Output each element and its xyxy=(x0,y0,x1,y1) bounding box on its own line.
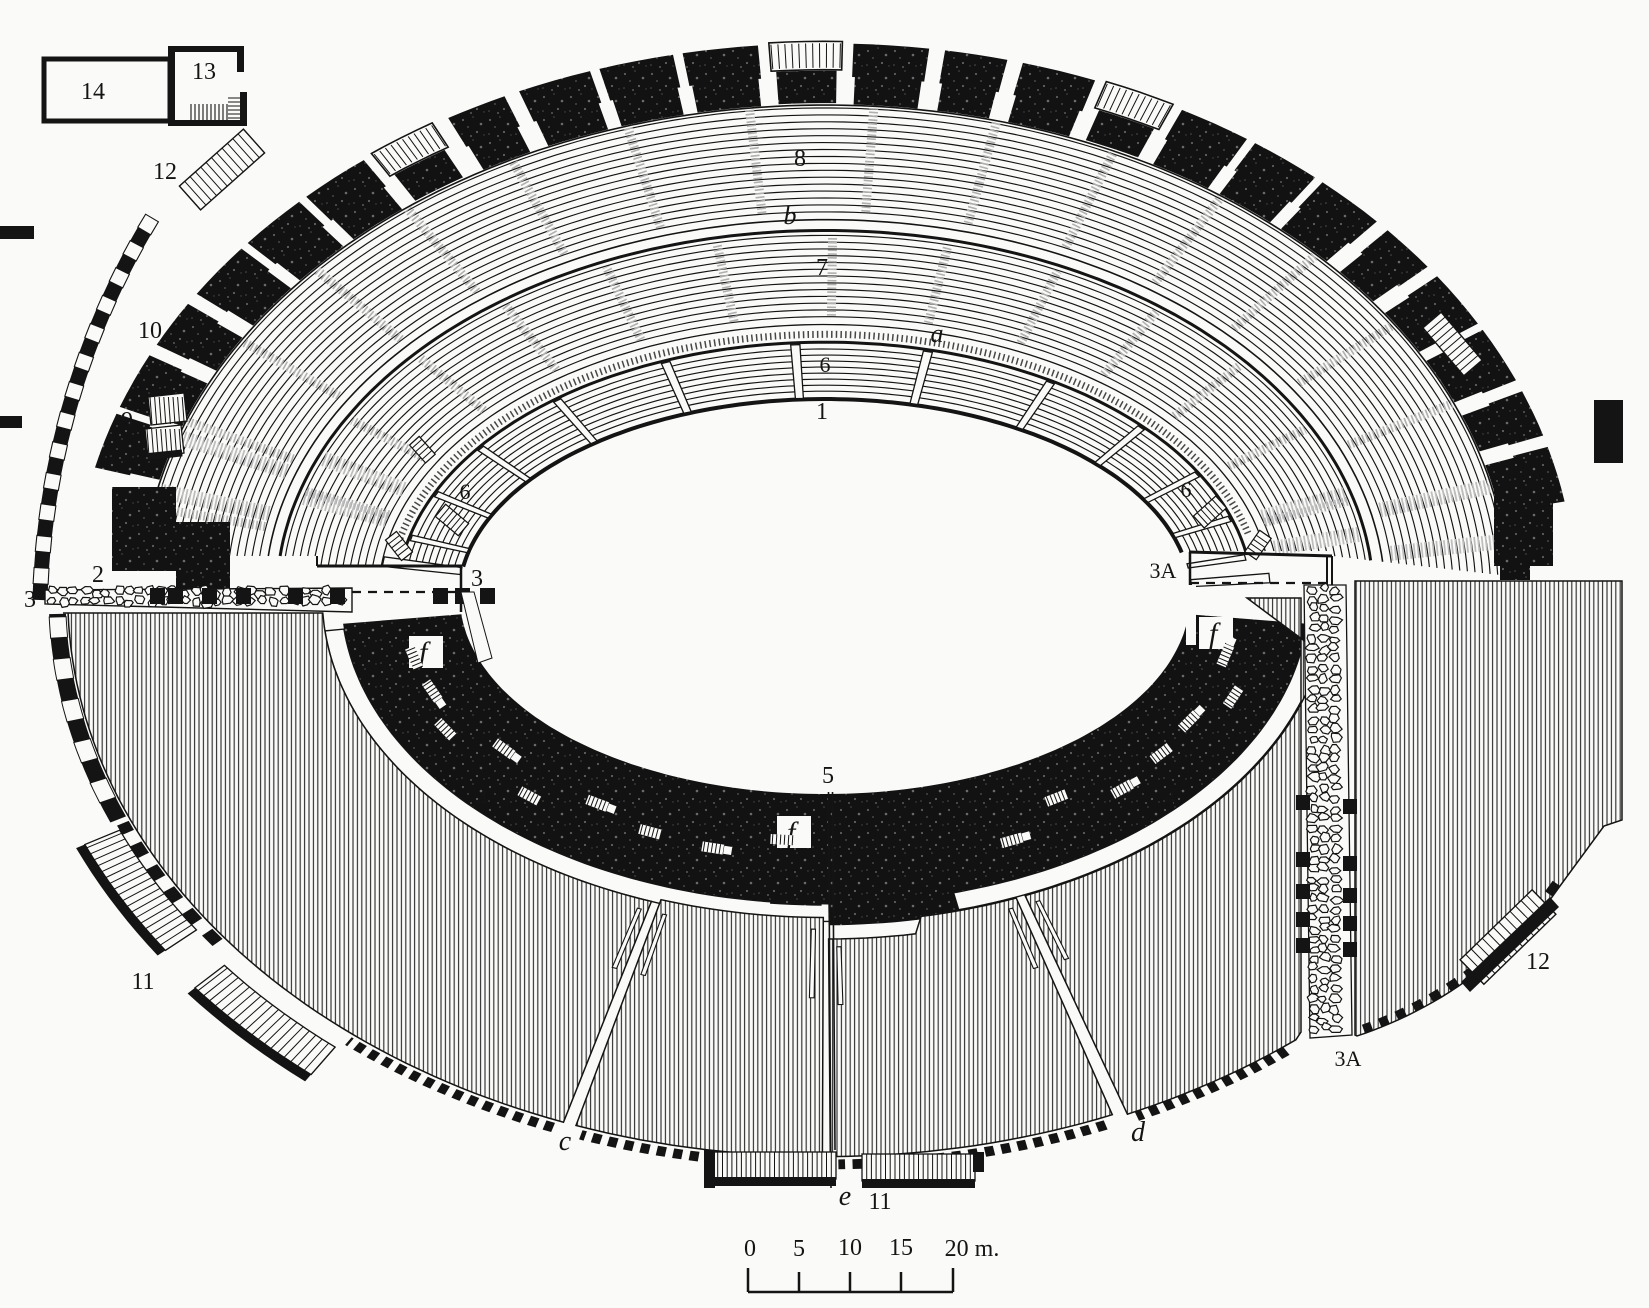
svg-text:0: 0 xyxy=(744,1236,756,1262)
svg-text:6: 6 xyxy=(820,352,831,377)
svg-text:5: 5 xyxy=(793,1236,805,1262)
svg-text:c: c xyxy=(559,1126,572,1157)
svg-text:2: 2 xyxy=(92,562,104,588)
svg-text:14: 14 xyxy=(81,79,105,105)
svg-text:12: 12 xyxy=(153,159,177,185)
svg-text:7: 7 xyxy=(816,255,828,281)
svg-text:15: 15 xyxy=(889,1235,913,1261)
svg-text:20 m.: 20 m. xyxy=(945,1236,1000,1262)
svg-text:4: 4 xyxy=(1165,784,1176,809)
svg-text:6: 6 xyxy=(460,479,471,504)
svg-text:9: 9 xyxy=(121,408,133,434)
svg-text:3: 3 xyxy=(24,587,36,613)
svg-text:10: 10 xyxy=(838,1235,862,1261)
svg-text:11: 11 xyxy=(131,969,154,995)
svg-text:a: a xyxy=(931,319,944,348)
svg-text:8: 8 xyxy=(794,146,806,172)
svg-text:4: 4 xyxy=(477,786,488,811)
svg-text:6: 6 xyxy=(1181,477,1192,502)
svg-text:e: e xyxy=(839,1181,851,1212)
svg-text:13: 13 xyxy=(192,59,216,85)
svg-text:b: b xyxy=(784,201,797,230)
svg-text:3A: 3A xyxy=(1150,558,1177,583)
svg-text:10: 10 xyxy=(138,318,162,344)
svg-text:5: 5 xyxy=(822,763,834,789)
svg-text:11: 11 xyxy=(868,1189,891,1215)
svg-text:1: 1 xyxy=(816,399,828,425)
svg-text:d: d xyxy=(1131,1117,1146,1148)
svg-text:3A: 3A xyxy=(1335,1046,1362,1071)
svg-text:3: 3 xyxy=(471,566,483,592)
svg-text:12: 12 xyxy=(1526,949,1550,975)
